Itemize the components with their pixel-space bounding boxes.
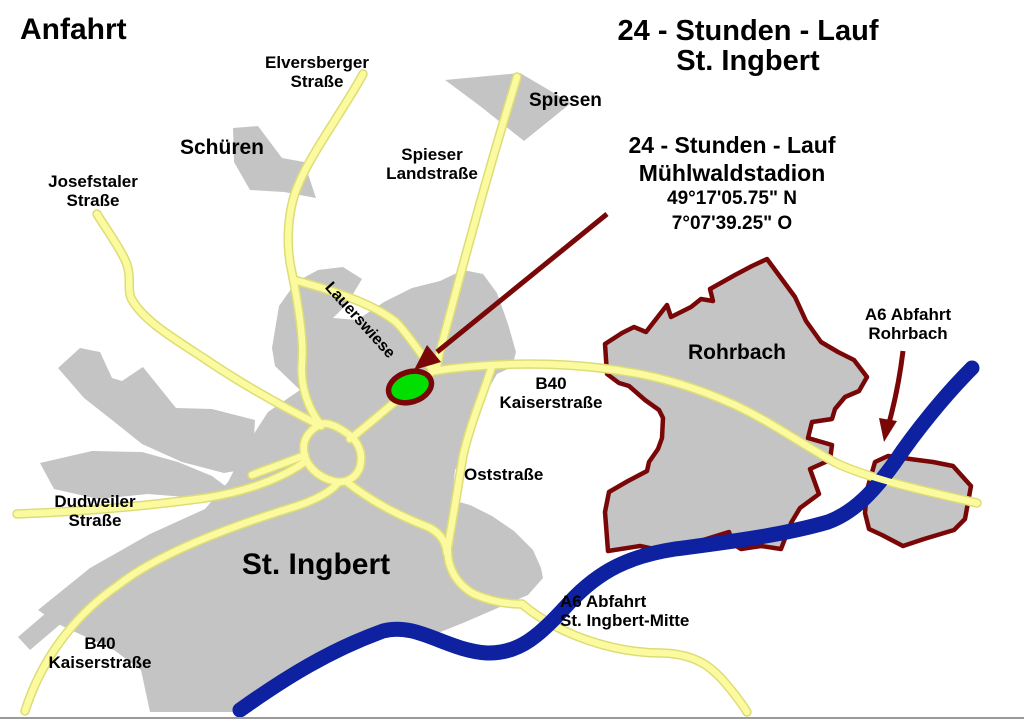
label-a6-exit-st-ingbert-mitte: A6 Abfahrt St. Ingbert-Mitte bbox=[560, 592, 689, 630]
event-title: 24 - Stunden - Lauf St. Ingbert bbox=[610, 16, 886, 77]
label-oststrasse: Oststraße bbox=[464, 465, 543, 484]
anfahrt-map: Anfahrt 24 - Stunden - Lauf St. Ingbert … bbox=[0, 0, 1024, 726]
callout-longitude: 7°07'39.25" O bbox=[629, 212, 836, 237]
page-title: Anfahrt bbox=[20, 14, 127, 46]
exit-rohrbach-arrow bbox=[879, 351, 903, 442]
exit-rohrbach-arrowhead-icon bbox=[879, 418, 897, 442]
stadium-callout: 24 - Stunden - Lauf Mühlwaldstadion 49°1… bbox=[629, 131, 836, 236]
label-elversberger-strasse: Elversberger Straße bbox=[265, 53, 369, 91]
callout-event-line: 24 - Stunden - Lauf bbox=[629, 131, 836, 159]
label-spiesen: Spiesen bbox=[529, 90, 602, 111]
callout-latitude: 49°17'05.75" N bbox=[629, 187, 836, 212]
label-st-ingbert: St. Ingbert bbox=[242, 549, 390, 581]
map-canvas bbox=[0, 0, 1024, 726]
label-josefstaler-strasse: Josefstaler Straße bbox=[48, 172, 138, 210]
label-b40-kaiserstrasse-center: B40 Kaiserstraße bbox=[499, 374, 602, 412]
label-spieser-landstrasse: Spieser Landstraße bbox=[386, 145, 478, 183]
label-a6-exit-rohrbach: A6 Abfahrt Rohrbach bbox=[865, 305, 951, 343]
label-dudweiler-strasse: Dudweiler Straße bbox=[54, 492, 135, 530]
label-rohrbach: Rohrbach bbox=[688, 341, 786, 365]
label-schueren: Schüren bbox=[180, 136, 264, 160]
label-b40-kaiserstrasse-southwest: B40 Kaiserstraße bbox=[48, 634, 151, 672]
map-bottom-border bbox=[0, 717, 1024, 719]
callout-stadium-name: Mühlwaldstadion bbox=[629, 159, 836, 187]
rohrbach-boundary-regions bbox=[605, 259, 971, 551]
